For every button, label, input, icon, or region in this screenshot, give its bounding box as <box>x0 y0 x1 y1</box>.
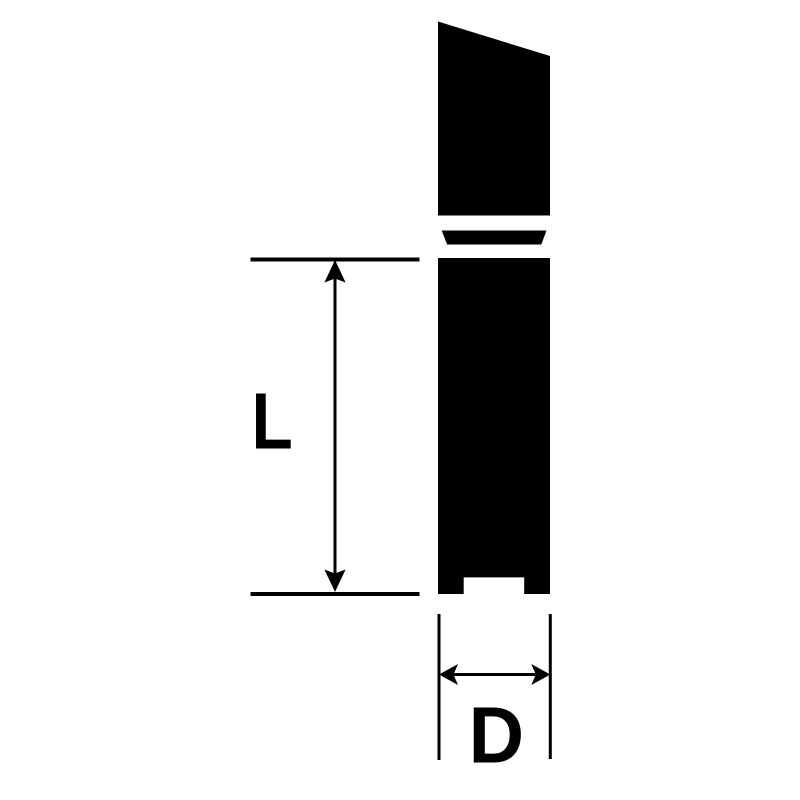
svg-text:D: D <box>469 690 524 780</box>
svg-text:L: L <box>252 377 293 466</box>
